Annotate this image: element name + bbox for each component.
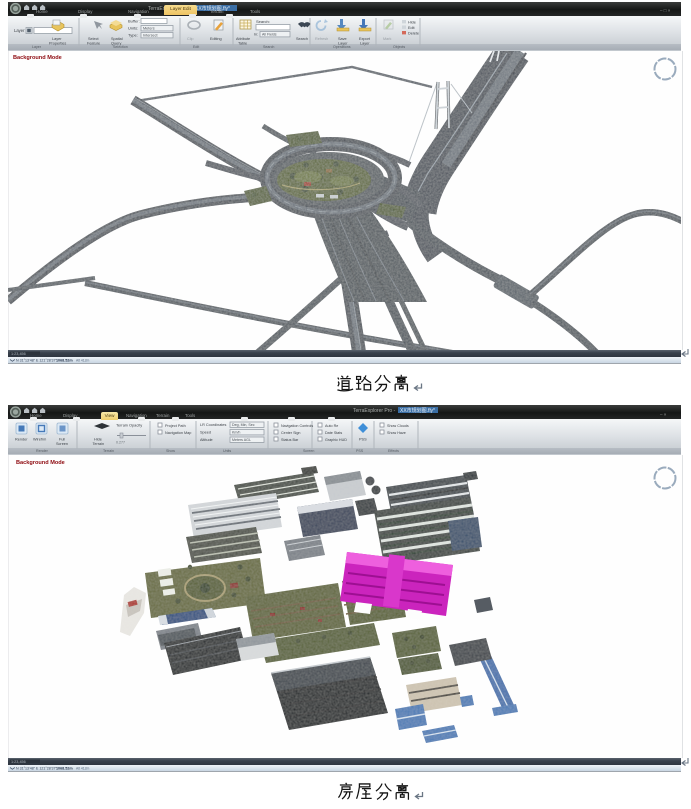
- svg-text:Meters: Meters: [143, 27, 155, 31]
- svg-text:Show Clouds: Show Clouds: [387, 424, 409, 428]
- svg-text:PSS: PSS: [359, 438, 367, 442]
- svg-text:Center Sign: Center Sign: [281, 431, 300, 435]
- svg-text:TerraExplorer Pro -: TerraExplorer Pro -: [353, 408, 396, 414]
- svg-text:XX市规划图.fly*: XX市规划图.fly*: [400, 407, 435, 414]
- svg-text:Km/h: Km/h: [232, 431, 240, 435]
- svg-text:Layer: Layer: [52, 37, 62, 41]
- svg-text:Date Stats: Date Stats: [325, 431, 342, 435]
- svg-text:Save: Save: [338, 37, 347, 41]
- svg-text:Navigation Map: Navigation Map: [165, 431, 191, 435]
- svg-text:All Fields: All Fields: [262, 33, 277, 37]
- svg-text:Editing: Editing: [210, 37, 222, 41]
- svg-text:Altitude: Altitude: [200, 438, 213, 442]
- svg-text:– □ ×: – □ ×: [660, 8, 671, 13]
- svg-text:Spatial: Spatial: [111, 37, 123, 41]
- svg-text:Full: Full: [59, 438, 65, 442]
- svg-text:Units:: Units:: [128, 26, 138, 31]
- svg-text:Attribute: Attribute: [236, 37, 250, 41]
- svg-text:Show Haze: Show Haze: [387, 431, 406, 435]
- svg-text:– ×: – ×: [660, 412, 667, 417]
- svg-text:Graphic HUD: Graphic HUD: [325, 438, 347, 442]
- svg-text:1:23,456: 1:23,456: [11, 352, 26, 356]
- svg-text:Select: Select: [88, 37, 99, 41]
- svg-text:Render: Render: [15, 438, 28, 442]
- svg-text:Clip: Clip: [187, 37, 194, 41]
- svg-text:Layer: Layer: [14, 28, 25, 33]
- svg-text:Terrain: Terrain: [93, 442, 105, 446]
- svg-text:Hide: Hide: [94, 438, 102, 442]
- svg-text:Project Path: Project Path: [165, 424, 186, 428]
- svg-text:1068.52m: 1068.52m: [56, 358, 73, 362]
- svg-text:Status Bar: Status Bar: [281, 438, 299, 442]
- svg-text:Edit: Edit: [408, 26, 415, 30]
- svg-text:Type:: Type:: [128, 33, 138, 38]
- svg-text:Meters AGL: Meters AGL: [232, 438, 251, 442]
- svg-text:Deg, Min, Sec: Deg, Min, Sec: [232, 423, 255, 427]
- svg-text:In:: In:: [254, 33, 258, 37]
- svg-text:Terrain Opacity: Terrain Opacity: [116, 423, 142, 428]
- svg-text:Refresh: Refresh: [315, 37, 328, 41]
- svg-text:Alt 412m: Alt 412m: [76, 358, 90, 362]
- svg-text:Delete: Delete: [408, 31, 419, 35]
- svg-text:1068.52m: 1068.52m: [56, 766, 73, 770]
- svg-text:Mark: Mark: [383, 37, 392, 41]
- svg-text:1:23,456: 1:23,456: [11, 760, 26, 764]
- svg-text:Wirefrm: Wirefrm: [33, 438, 46, 442]
- svg-text:Search:: Search:: [256, 19, 270, 24]
- svg-text:Buffer:: Buffer:: [128, 19, 140, 24]
- svg-text:Speed: Speed: [200, 431, 211, 435]
- svg-text:LR Coordinates: LR Coordinates: [200, 423, 226, 427]
- svg-text:Screen: Screen: [56, 442, 68, 446]
- svg-text:Search: Search: [296, 37, 308, 41]
- svg-text:N 31°13'48" E 121°28'37": N 31°13'48" E 121°28'37": [16, 358, 57, 362]
- svg-text:Intersect: Intersect: [143, 34, 159, 38]
- svg-text:Auto Re: Auto Re: [325, 424, 338, 428]
- svg-text:N 31°13'48" E 121°28'37": N 31°13'48" E 121°28'37": [16, 766, 57, 770]
- svg-text:0.277: 0.277: [116, 441, 125, 445]
- svg-text:Hide: Hide: [408, 20, 416, 24]
- svg-text:Alt 412m: Alt 412m: [76, 766, 90, 770]
- svg-text:Export: Export: [359, 37, 371, 41]
- svg-text:Navigation Controls: Navigation Controls: [281, 424, 313, 428]
